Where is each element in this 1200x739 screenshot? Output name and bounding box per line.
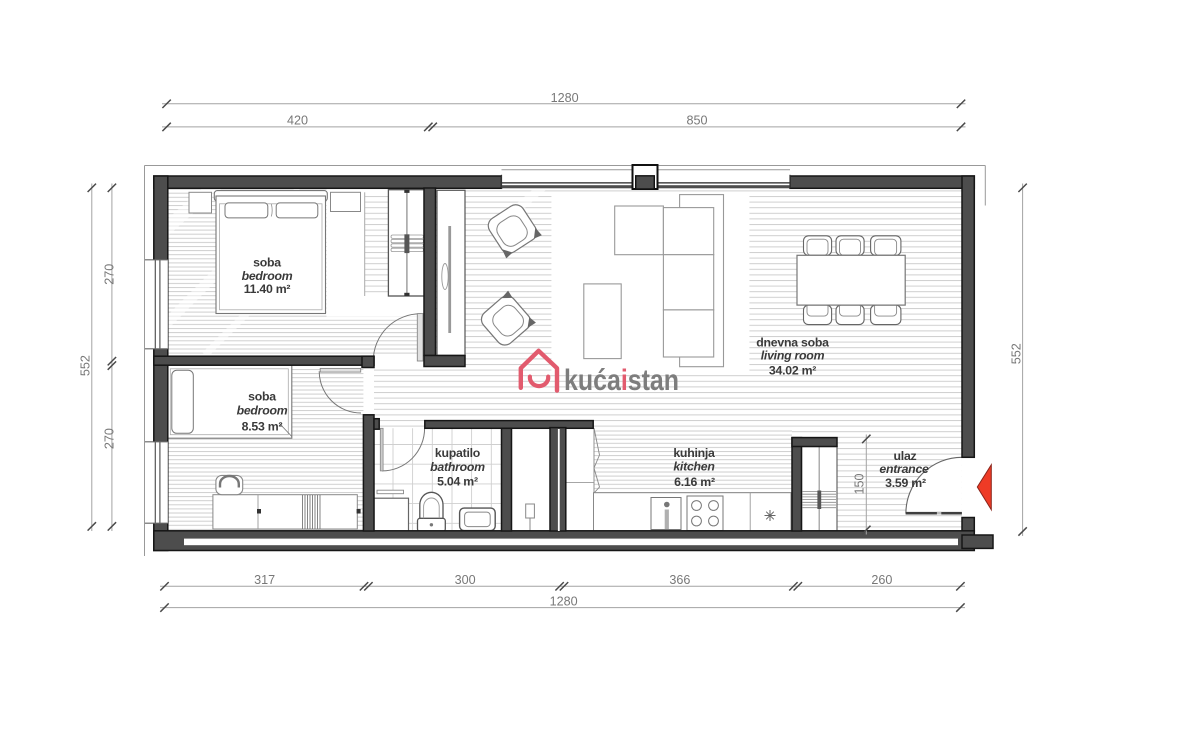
svg-text:kupatilo: kupatilo xyxy=(435,446,481,460)
svg-text:552: 552 xyxy=(79,355,93,376)
svg-text:bathroom: bathroom xyxy=(430,460,485,474)
svg-text:5.04 m²: 5.04 m² xyxy=(437,475,478,489)
svg-text:living room: living room xyxy=(761,349,825,363)
svg-text:dnevna soba: dnevna soba xyxy=(756,336,829,350)
svg-text:150: 150 xyxy=(853,473,867,494)
svg-text:317: 317 xyxy=(254,573,275,587)
svg-text:420: 420 xyxy=(287,114,308,128)
svg-text:kitchen: kitchen xyxy=(673,460,714,474)
svg-text:kućaistan: kućaistan xyxy=(564,364,679,397)
svg-text:270: 270 xyxy=(103,428,117,449)
svg-text:850: 850 xyxy=(686,114,707,128)
svg-text:1280: 1280 xyxy=(550,594,578,608)
svg-text:366: 366 xyxy=(669,573,690,587)
svg-text:soba: soba xyxy=(253,255,281,269)
svg-text:bedroom: bedroom xyxy=(237,404,288,418)
svg-text:552: 552 xyxy=(1010,343,1024,364)
svg-text:260: 260 xyxy=(871,573,892,587)
svg-text:3.59 m²: 3.59 m² xyxy=(885,476,926,490)
svg-text:300: 300 xyxy=(455,573,476,587)
svg-text:1280: 1280 xyxy=(551,91,579,105)
svg-text:entrance: entrance xyxy=(879,462,929,476)
svg-text:kuhinja: kuhinja xyxy=(673,446,715,460)
svg-text:8.53 m²: 8.53 m² xyxy=(242,419,283,433)
svg-text:6.16 m²: 6.16 m² xyxy=(674,475,715,489)
svg-text:34.02 m²: 34.02 m² xyxy=(769,364,816,378)
svg-text:soba: soba xyxy=(248,389,276,403)
svg-text:bedroom: bedroom xyxy=(242,269,293,283)
svg-text:270: 270 xyxy=(103,264,117,285)
svg-text:11.40 m²: 11.40 m² xyxy=(244,282,291,296)
svg-text:ulaz: ulaz xyxy=(894,449,917,463)
